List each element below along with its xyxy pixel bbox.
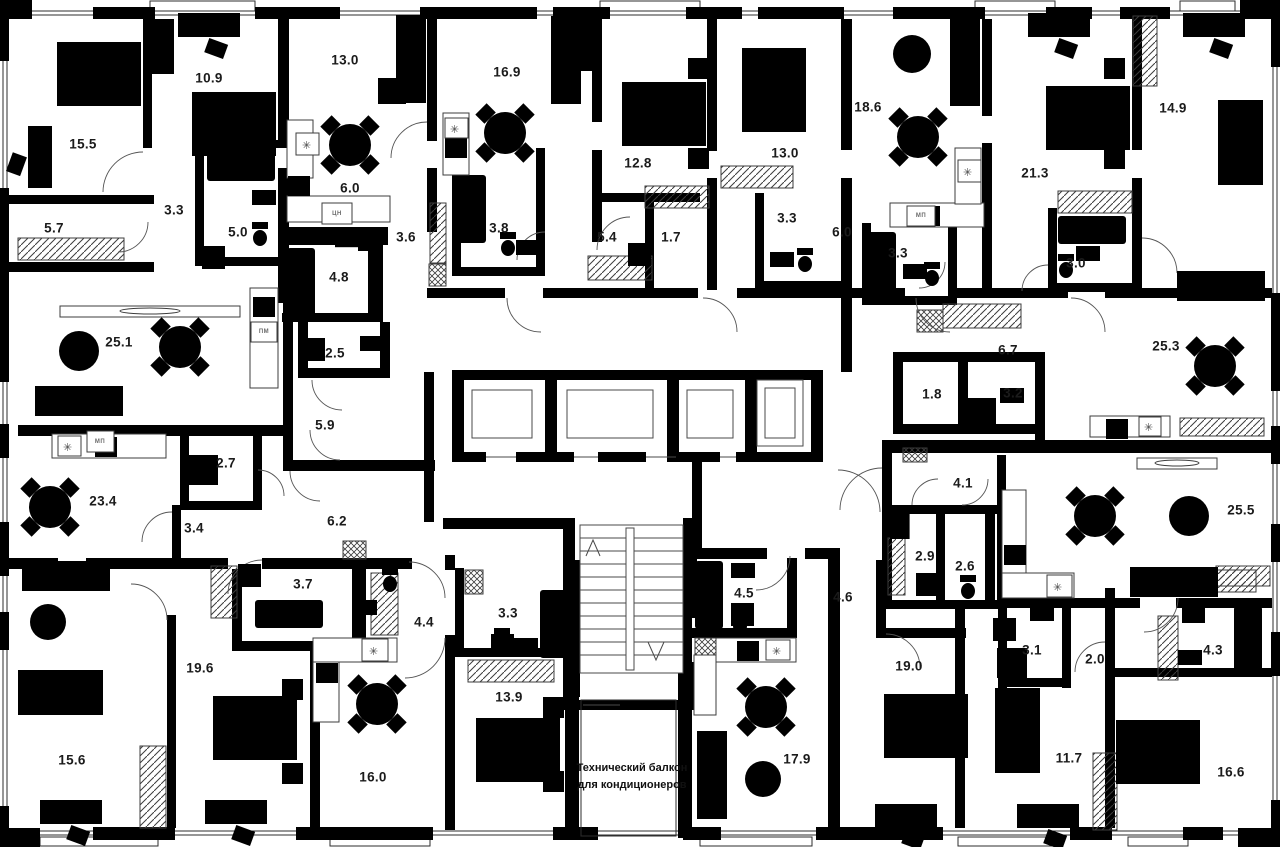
wardrobe xyxy=(150,19,174,74)
svg-text:✳: ✳ xyxy=(302,139,311,152)
svg-text:✳: ✳ xyxy=(1144,421,1153,434)
radiator xyxy=(688,58,709,79)
svg-text:✳: ✳ xyxy=(963,166,972,179)
svg-text:✳: ✳ xyxy=(63,441,72,454)
stair-core xyxy=(580,525,683,705)
svg-text:✳: ✳ xyxy=(1053,581,1062,594)
floor-plan: ✳✳ ✳✳ ✳✳ ✳✳ 15.510.913.016.912.813.018.6… xyxy=(0,0,1280,847)
technical-balcony-note: Технический балкон для кондиционеров xyxy=(566,760,698,794)
toilet xyxy=(252,222,268,246)
washing-machine xyxy=(202,246,225,269)
note-line-2: для кондиционеров xyxy=(566,777,698,794)
svg-text:✳: ✳ xyxy=(772,645,781,658)
desk xyxy=(178,13,240,59)
elevator-car xyxy=(472,390,532,438)
note-line-1: Технический балкон xyxy=(566,760,698,777)
bathtub xyxy=(207,153,275,181)
svg-text:✳: ✳ xyxy=(450,123,459,136)
stove xyxy=(288,176,310,196)
floor-plan-drawing: ✳✳ ✳✳ ✳✳ ✳✳ xyxy=(0,0,1280,847)
sink xyxy=(252,190,276,205)
svg-text:✳: ✳ xyxy=(369,645,378,658)
bed xyxy=(57,42,141,106)
